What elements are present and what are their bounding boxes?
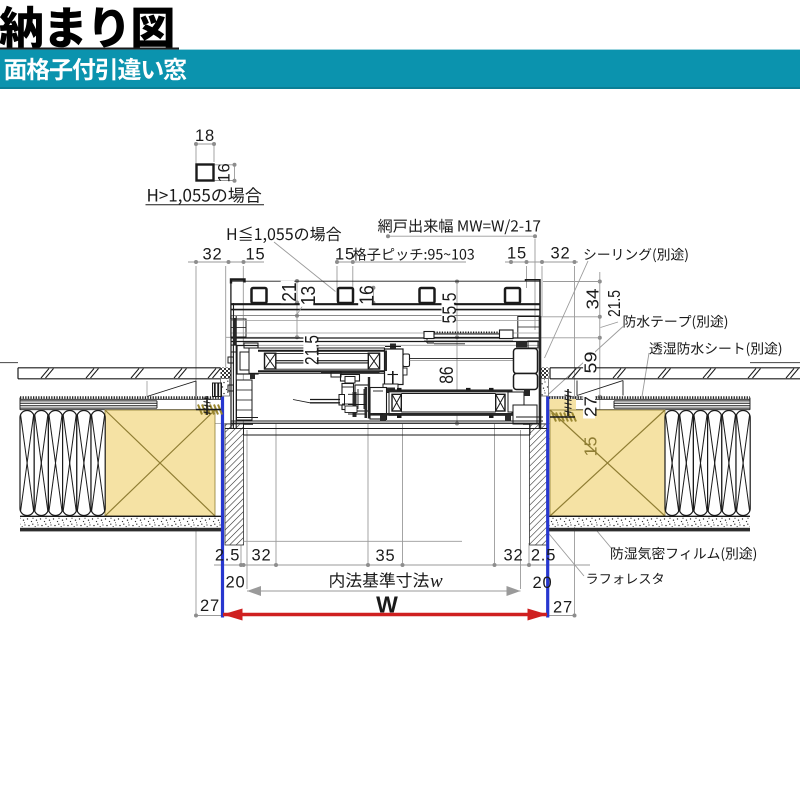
svg-text:86: 86 xyxy=(436,366,458,384)
svg-text:16: 16 xyxy=(357,285,379,305)
svg-text:18: 18 xyxy=(195,127,215,145)
svg-text:32: 32 xyxy=(551,245,571,263)
svg-text:34: 34 xyxy=(583,288,603,309)
svg-text:15: 15 xyxy=(335,246,355,264)
svg-text:21.5: 21.5 xyxy=(604,290,624,317)
svg-text:27: 27 xyxy=(581,396,601,417)
svg-text:27: 27 xyxy=(553,599,573,617)
svg-text:35: 35 xyxy=(376,547,396,565)
svg-text:27: 27 xyxy=(200,597,220,615)
svg-text:15: 15 xyxy=(246,246,266,264)
svg-text:21.5: 21.5 xyxy=(301,335,323,365)
svg-text:55.5: 55.5 xyxy=(440,293,461,324)
svg-text:15: 15 xyxy=(507,245,527,263)
svg-text:16: 16 xyxy=(216,163,234,183)
svg-text:2.5: 2.5 xyxy=(531,547,556,565)
svg-text:32: 32 xyxy=(504,547,524,565)
svg-text:20: 20 xyxy=(533,574,553,592)
svg-text:20: 20 xyxy=(226,574,246,592)
svg-text:32: 32 xyxy=(203,246,223,264)
svg-text:w: w xyxy=(430,571,443,592)
svg-text:32: 32 xyxy=(252,547,272,565)
svg-text:15: 15 xyxy=(581,437,601,457)
svg-text:2.5: 2.5 xyxy=(215,547,240,565)
svg-text:13: 13 xyxy=(298,286,320,306)
svg-text:59: 59 xyxy=(581,352,601,374)
